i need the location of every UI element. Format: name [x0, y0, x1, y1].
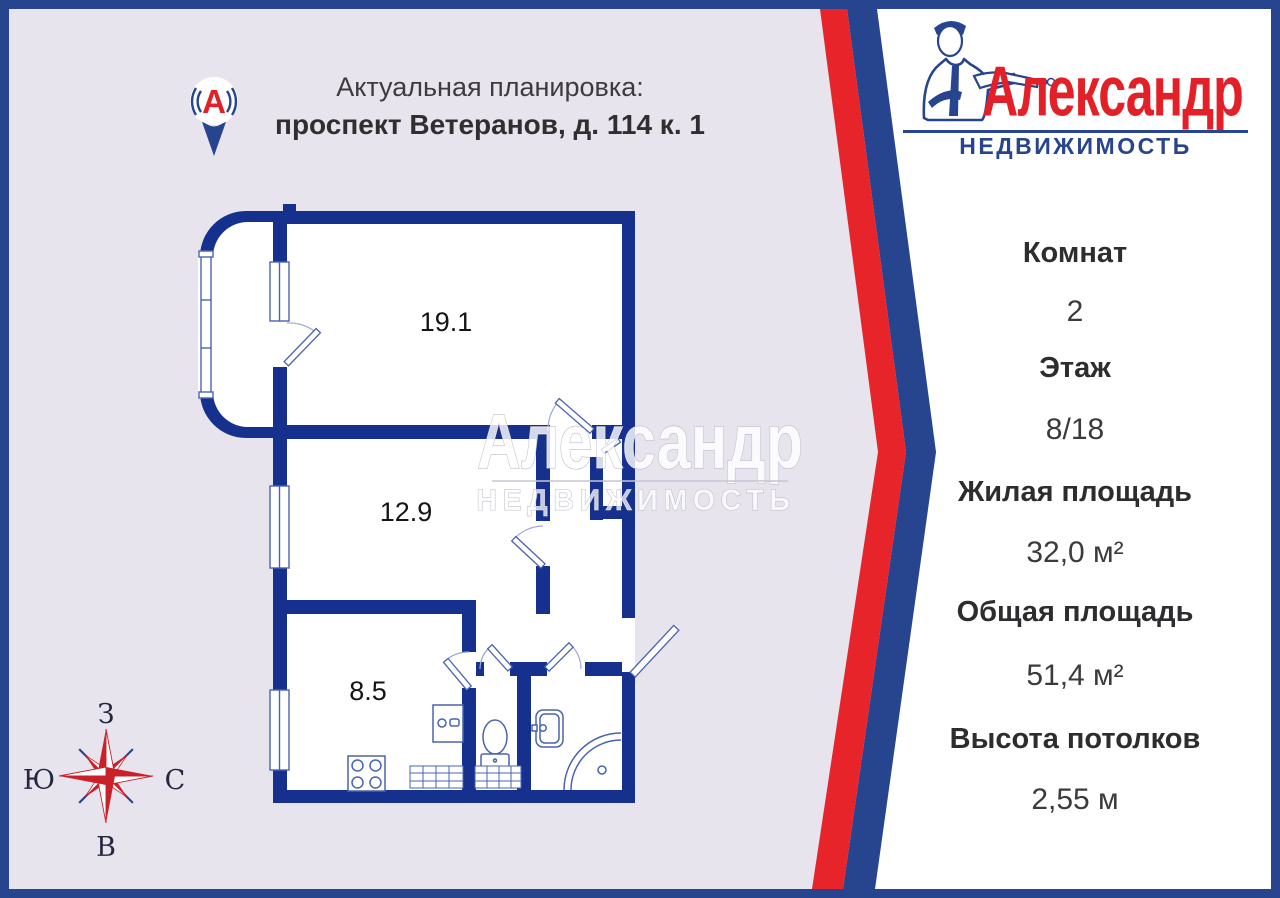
detail-value-ceiling: 2,55 м — [940, 783, 1210, 817]
address-line: проспект Ветеранов, д. 114 к. 1 — [200, 109, 780, 141]
wall-bath-top-r — [585, 662, 622, 676]
stove-icon — [348, 756, 385, 791]
room-area-bedroom: 12.9 — [380, 497, 433, 527]
compass-west-label: З — [98, 699, 115, 730]
wall-top-notch — [283, 204, 296, 212]
wall-kitchen-top — [273, 600, 462, 614]
detail-label-living-area: Жилая площадь — [940, 476, 1210, 509]
detail-value-floor: 8/18 — [940, 413, 1210, 447]
watermark-name: Александр — [477, 398, 803, 485]
wall-kitchen-right-a — [462, 600, 476, 652]
wall-right-lower — [622, 672, 635, 803]
room-area-kitchen: 8.5 — [349, 676, 387, 706]
balcony-window — [199, 251, 213, 398]
detail-value-rooms: 2 — [940, 295, 1210, 329]
detail-label-rooms: Комнат — [940, 237, 1210, 270]
detail-label-total-area: Общая площадь — [940, 596, 1210, 629]
wall-top — [283, 211, 635, 224]
detail-value-living-area: 32,0 м² — [940, 536, 1210, 570]
detail-label-floor: Этаж — [940, 352, 1210, 385]
sink-icon — [532, 710, 563, 747]
compass-north-label: С — [165, 765, 186, 796]
flyer-page: 19.1 12.9 8.5 Александр НЕДВИЖИМОСТЬ — [0, 0, 1280, 898]
wall-wc-top-r — [510, 662, 517, 676]
compass-south-label: Ю — [23, 765, 55, 796]
toilet-icon — [481, 720, 509, 767]
logo-subtitle: НЕДВИЖИМОСТЬ — [903, 133, 1248, 160]
logo-name: Александр — [982, 52, 1261, 133]
page-title: Актуальная планировка: — [240, 72, 740, 103]
room-area-living: 19.1 — [420, 307, 473, 337]
wall-kitchen-right-b — [462, 688, 476, 790]
wall-bath-top-l — [531, 662, 547, 676]
compass-east-label: В — [96, 832, 116, 863]
watermark-subtitle: НЕДВИЖИМОСТЬ — [476, 484, 795, 517]
radiator-kitchen — [410, 766, 463, 788]
radiator-wc — [475, 766, 521, 788]
detail-label-ceiling: Высота потолков — [940, 723, 1210, 756]
watermark: Александр НЕДВИЖИМОСТЬ — [476, 398, 803, 517]
wall-corridor-b — [536, 566, 550, 614]
balcony-interior — [205, 216, 283, 433]
washing-machine-icon — [433, 705, 463, 742]
wall-bottom — [273, 790, 635, 803]
detail-value-total-area: 51,4 м² — [940, 659, 1210, 693]
